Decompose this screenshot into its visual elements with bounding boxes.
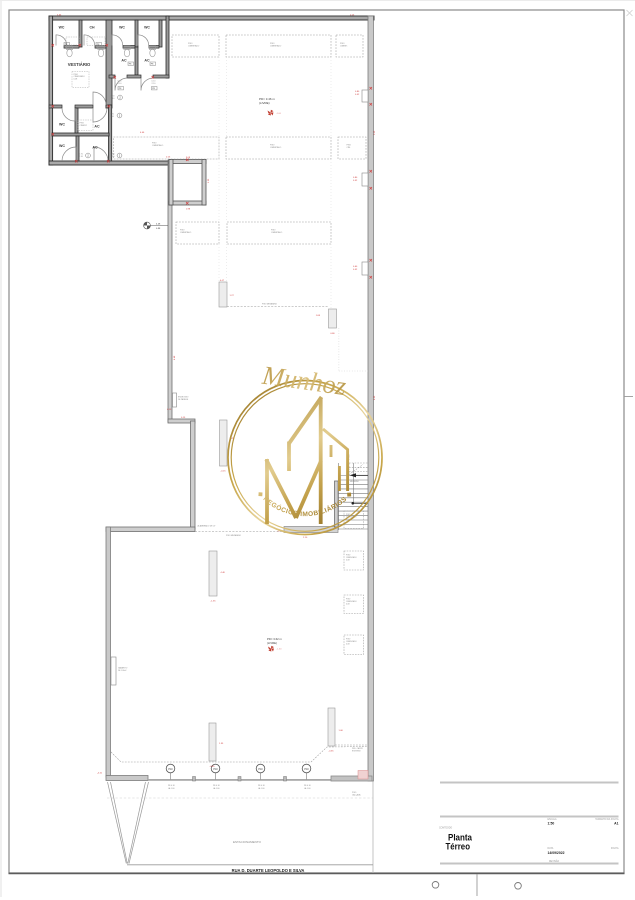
svg-text:CIMENTADO: CIMENTADO <box>271 231 283 234</box>
svg-text:0.08: 0.08 <box>346 643 350 645</box>
svg-text:PISO MEZANINO: PISO MEZANINO <box>226 534 242 537</box>
svg-text:PE 0.10: PE 0.10 <box>304 785 311 787</box>
svg-text:PE 0.10: PE 0.10 <box>213 785 220 787</box>
svg-text:Térreo: Térreo <box>446 842 471 852</box>
svg-text:WC: WC <box>59 144 65 148</box>
svg-text:ESTACIONAMENTO: ESTACIONAMENTO <box>233 840 262 844</box>
svg-text:-0.35: -0.35 <box>210 766 216 768</box>
svg-text:CIM.: CIM. <box>347 147 351 149</box>
svg-text:AC: AC <box>92 146 98 150</box>
svg-text:AC: AC <box>121 59 127 63</box>
svg-text:P10: P10 <box>258 768 263 771</box>
svg-text:CALÇADA: CALÇADA <box>352 794 361 797</box>
svg-text:RUA D. DUARTE LEOPOLDO E SILVA: RUA D. DUARTE LEOPOLDO E SILVA <box>232 868 305 873</box>
svg-text:(LIVRE): (LIVRE) <box>267 641 277 645</box>
svg-text:CIMENTADO: CIMENTADO <box>180 231 192 234</box>
svg-text:-1.60: -1.60 <box>277 649 283 651</box>
svg-text:LA 1.00: LA 1.00 <box>168 787 174 790</box>
svg-text:FOLHA: FOLHA <box>611 847 619 850</box>
svg-text:CONTEÚDO: CONTEÚDO <box>439 827 452 830</box>
svg-text:LA 1.00: LA 1.00 <box>304 787 310 790</box>
svg-text:-0.15: -0.15 <box>221 471 227 473</box>
svg-text:-4.10: -4.10 <box>97 773 103 775</box>
svg-text:AC: AC <box>94 125 100 129</box>
svg-text:PISO MEZANINO: PISO MEZANINO <box>262 303 278 306</box>
svg-text:ALAMBRADO DE LV: ALAMBRADO DE LV <box>198 524 216 527</box>
svg-text:1:50: 1:50 <box>548 822 555 826</box>
svg-text:0.08: 0.08 <box>346 603 350 605</box>
svg-text:-1.60: -1.60 <box>276 113 282 115</box>
svg-text:WC: WC <box>144 26 150 30</box>
svg-text:-1.35: -1.35 <box>211 601 217 603</box>
svg-text:EXTERNO: EXTERNO <box>352 750 361 752</box>
svg-text:0.08: 0.08 <box>346 559 350 561</box>
svg-text:DATA: DATA <box>548 847 554 850</box>
svg-text:PE 0.10: PE 0.10 <box>258 785 265 787</box>
svg-text:CIMENT.: CIMENT. <box>340 46 348 48</box>
svg-text:VESTIÁRIO: VESTIÁRIO <box>68 62 91 67</box>
svg-text:WC: WC <box>59 123 65 127</box>
svg-text:LA 1.00: LA 1.00 <box>258 787 264 790</box>
svg-text:MEZANINO: MEZANINO <box>350 480 360 483</box>
svg-text:AC: AC <box>144 59 150 63</box>
svg-text:WC: WC <box>59 26 65 30</box>
svg-text:(LIVRE): (LIVRE) <box>259 101 270 105</box>
svg-text:A1: A1 <box>614 822 618 826</box>
svg-text:CH: CH <box>89 26 95 30</box>
svg-text:DE 1.80x2: DE 1.80x2 <box>118 670 126 672</box>
svg-text:PED. CANTO: PED. CANTO <box>352 747 364 750</box>
svg-text:CIMENTADO: CIMENTADO <box>152 144 164 147</box>
svg-text:P10: P10 <box>213 768 218 771</box>
svg-text:PE 0.10: PE 0.10 <box>168 785 175 787</box>
svg-text:LA 1.00: LA 1.00 <box>213 787 219 790</box>
svg-text:REVISÃO: REVISÃO <box>549 860 559 863</box>
svg-text:DE PAREDE: DE PAREDE <box>178 398 189 401</box>
svg-text:0.08: 0.08 <box>74 79 78 81</box>
svg-text:CIMENTADO: CIMENTADO <box>270 45 282 48</box>
svg-text:P10: P10 <box>304 768 309 771</box>
svg-text:14/09/2022: 14/09/2022 <box>548 851 565 855</box>
svg-text:CIMENTADO: CIMENTADO <box>188 45 200 48</box>
svg-text:CIMENTADO: CIMENTADO <box>270 146 282 149</box>
svg-text:-0.35: -0.35 <box>329 750 335 752</box>
svg-text:CIMENT.: CIMENT. <box>80 125 88 127</box>
svg-text:P10: P10 <box>168 768 173 771</box>
svg-text:WC: WC <box>119 26 125 30</box>
